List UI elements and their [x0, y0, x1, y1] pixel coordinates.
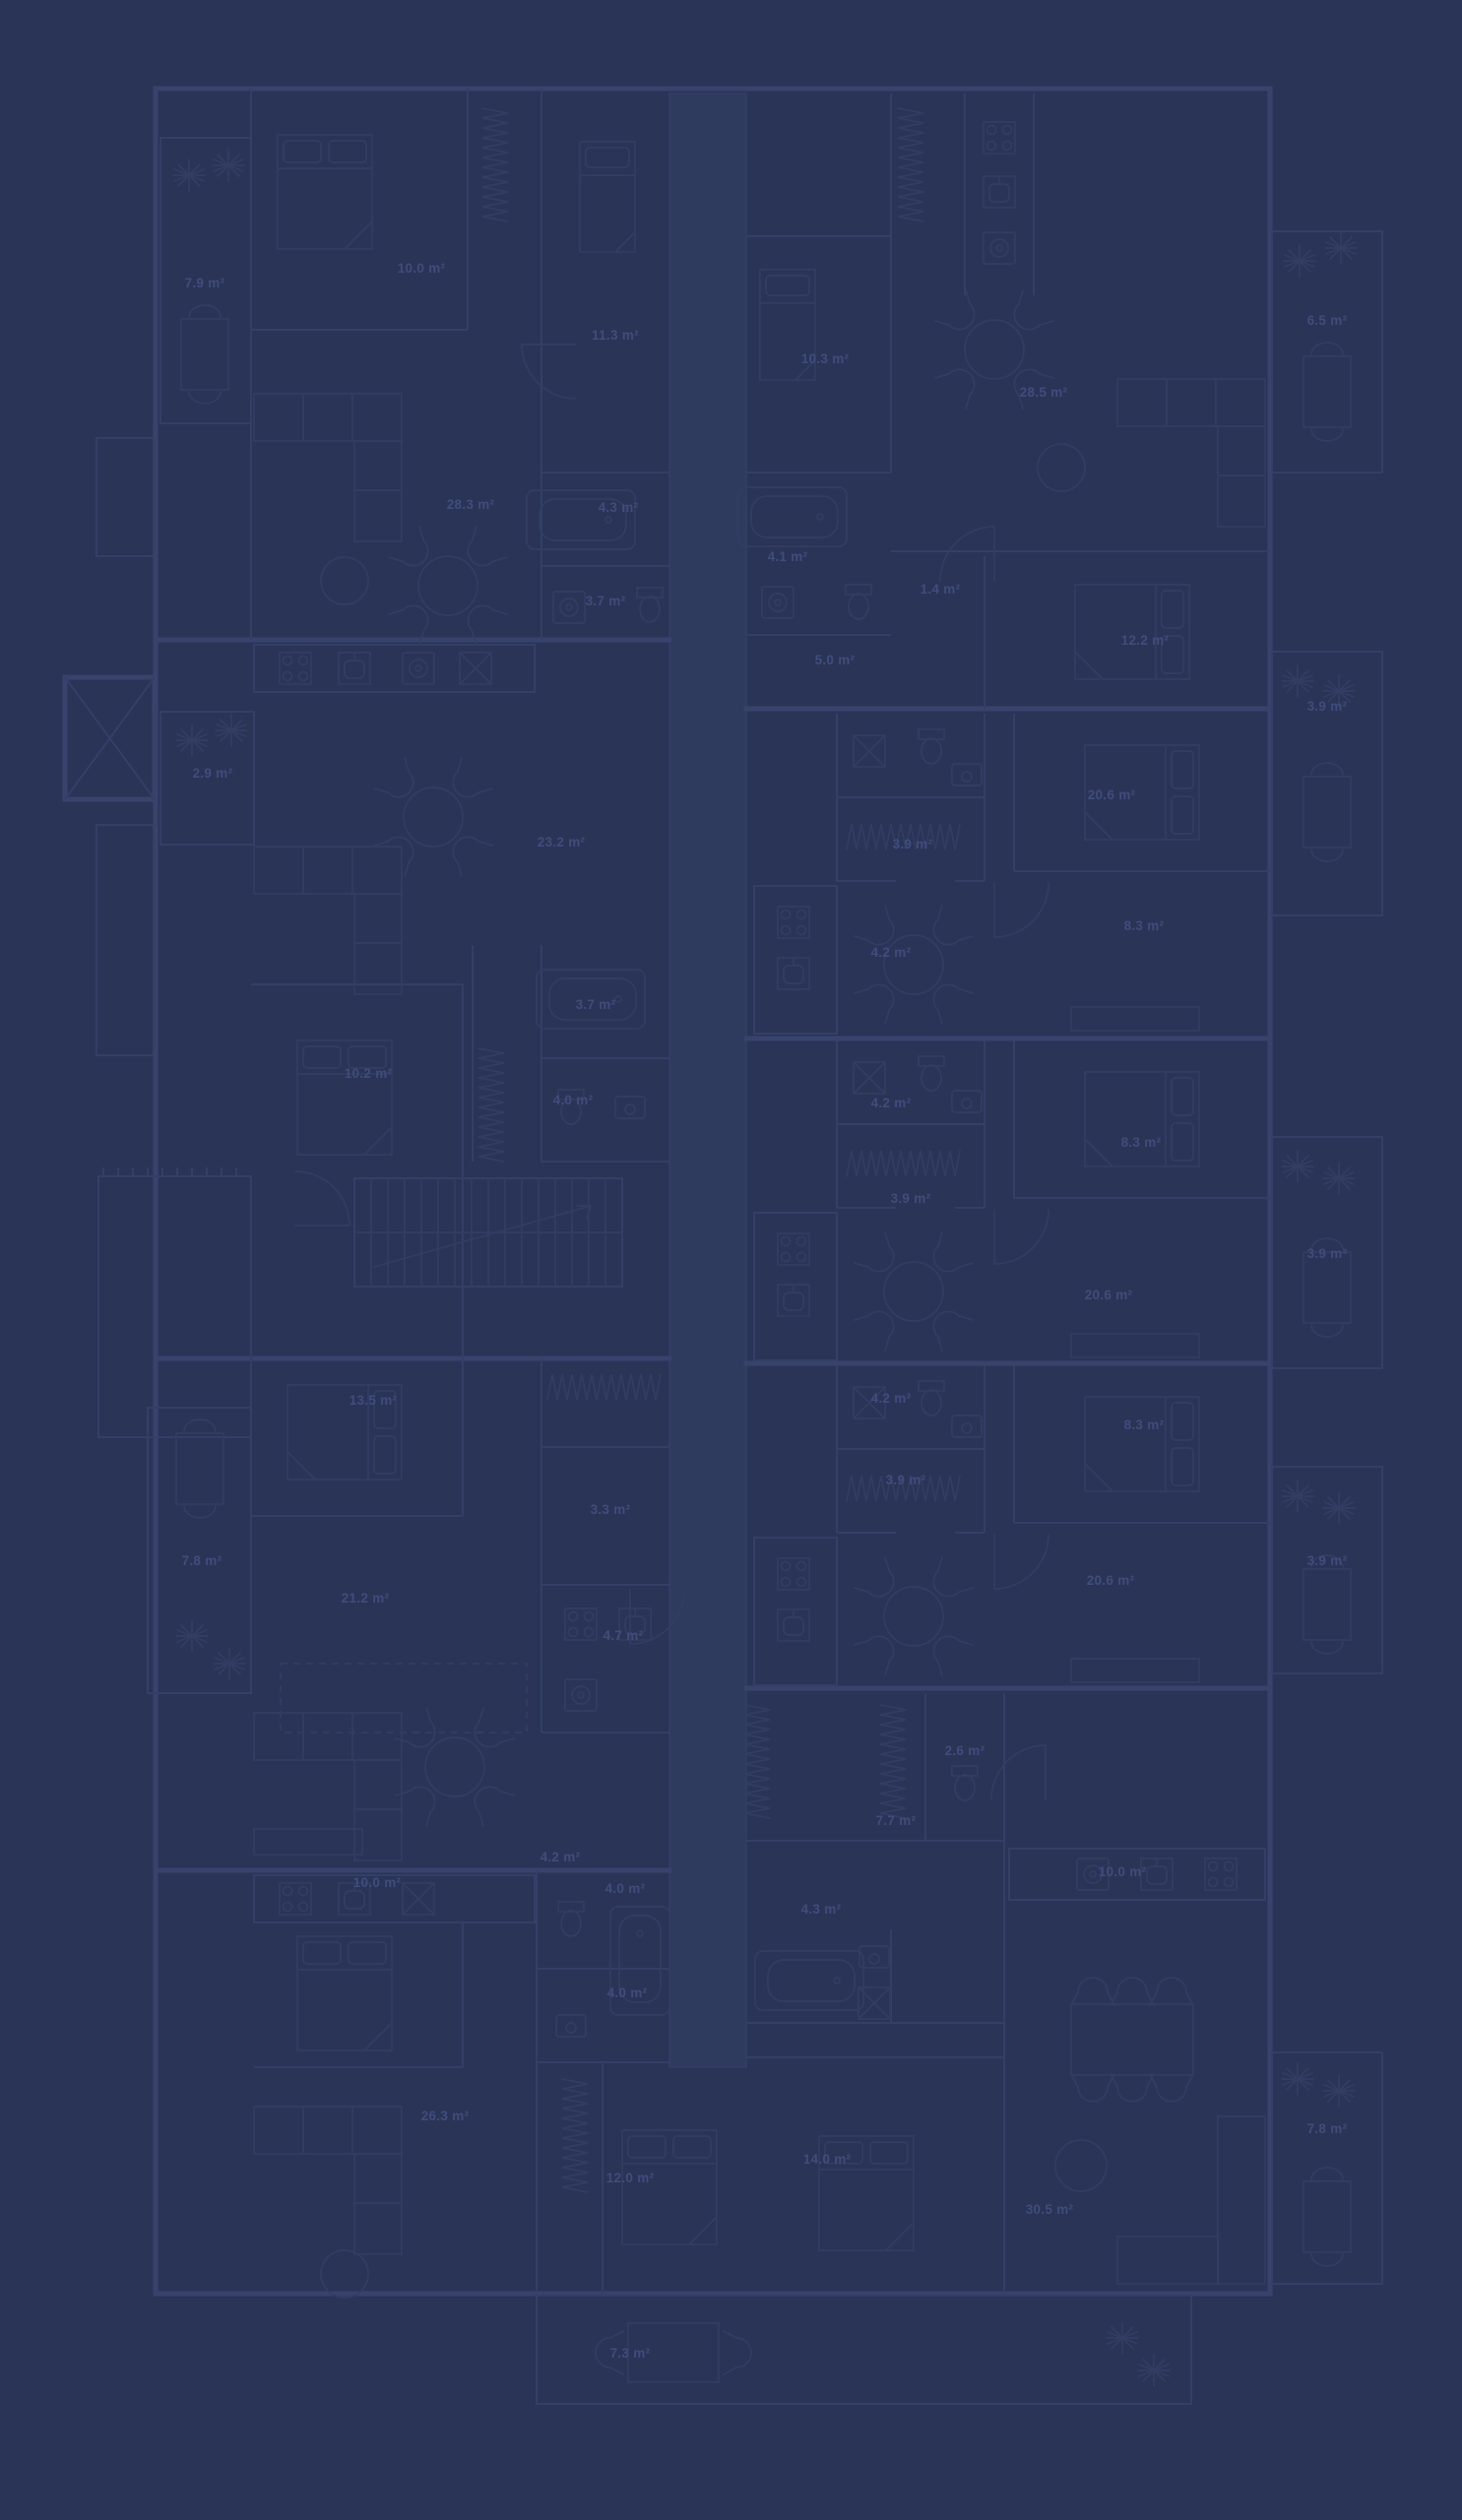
- room-area-label: 7.3 m²: [610, 2346, 651, 2361]
- room-area-label: 23.2 m²: [538, 835, 586, 850]
- room-area-label: 4.2 m²: [871, 945, 912, 960]
- room-area-label: 3.9 m²: [1307, 1246, 1348, 1261]
- carpet-dashed-outline: [281, 1664, 527, 1732]
- room-area-label: 3.3 m²: [591, 1502, 631, 1517]
- room-area-label: 4.3 m²: [599, 500, 639, 515]
- room-area-label: 8.3 m²: [1124, 918, 1165, 933]
- room-area-label: 7.8 m²: [182, 1553, 222, 1568]
- room-area-label: 28.5 m²: [1020, 385, 1068, 400]
- room-area-label: 4.2 m²: [871, 1391, 912, 1406]
- room-area-label: 20.6 m²: [1088, 787, 1136, 802]
- room-area-label: 4.2 m²: [871, 1096, 912, 1110]
- room-area-label: 11.3 m²: [592, 328, 639, 343]
- room-area-label: 3.7 m²: [586, 594, 626, 608]
- staircase: [354, 1178, 622, 1287]
- room-area-label: 12.0 m²: [606, 2171, 655, 2185]
- room-area-label: 10.2 m²: [345, 1066, 393, 1081]
- room-area-label: 3.9 m²: [1307, 1553, 1348, 1568]
- room-area-label: 10.3 m²: [801, 351, 850, 366]
- walls-outer: [65, 89, 1270, 2294]
- furniture: [173, 108, 1357, 2386]
- room-area-label: 4.2 m²: [540, 1850, 581, 1864]
- room-area-label: 2.6 m²: [945, 1743, 985, 1758]
- room-area-label: 26.3 m²: [421, 2109, 470, 2123]
- room-area-label: 30.5 m²: [1026, 2202, 1074, 2217]
- room-area-label: 28.3 m²: [447, 497, 495, 512]
- room-area-label: 3.9 m²: [893, 837, 933, 851]
- floorplan-watermark: 7.9 m²10.0 m²11.3 m²4.3 m²28.3 m²3.7 m²2…: [0, 0, 1462, 2520]
- room-area-label: 12.2 m²: [1121, 633, 1170, 648]
- room-area-label: 20.6 m²: [1087, 1573, 1135, 1588]
- room-area-label: 4.3 m²: [801, 1902, 842, 1917]
- room-area-label: 4.0 m²: [607, 1985, 648, 2000]
- room-area-label: 6.5 m²: [1307, 313, 1348, 328]
- room-area-label: 7.9 m²: [185, 276, 225, 290]
- room-area-label: 14.0 m²: [803, 2152, 852, 2167]
- room-area-label: 2.9 m²: [193, 766, 233, 781]
- right-wing-units: [754, 714, 1270, 1685]
- room-area-label: 10.0 m²: [1099, 1864, 1147, 1879]
- room-area-label: 20.6 m²: [1085, 1288, 1133, 1302]
- room-area-label: 10.0 m²: [398, 261, 446, 276]
- room-area-label: 4.1 m²: [768, 549, 808, 564]
- room-area-label: 4.0 m²: [605, 1881, 646, 1896]
- blueprint-background: 7.9 m²10.0 m²11.3 m²4.3 m²28.3 m²3.7 m²2…: [0, 0, 1462, 2520]
- room-area-label: 3.7 m²: [576, 997, 616, 1012]
- room-area-label: 13.5 m²: [350, 1393, 398, 1408]
- room-area-label: 3.9 m²: [886, 1473, 926, 1487]
- room-area-labels: 7.9 m²10.0 m²11.3 m²4.3 m²28.3 m²3.7 m²2…: [182, 261, 1348, 2361]
- room-area-label: 4.0 m²: [553, 1093, 594, 1107]
- room-area-label: 1.4 m²: [921, 582, 961, 597]
- room-area-label: 8.3 m²: [1124, 1417, 1165, 1432]
- corridor: [669, 94, 746, 2067]
- room-area-label: 7.8 m²: [1307, 2121, 1348, 2136]
- room-area-label: 7.7 m²: [876, 1813, 917, 1828]
- room-area-label: 10.0 m²: [353, 1875, 402, 1890]
- room-area-label: 5.0 m²: [815, 653, 856, 667]
- room-area-label: 4.7 m²: [604, 1628, 644, 1643]
- room-area-label: 8.3 m²: [1121, 1135, 1162, 1150]
- room-area-label: 21.2 m²: [342, 1591, 390, 1606]
- room-area-label: 3.9 m²: [891, 1191, 931, 1206]
- room-area-label: 3.9 m²: [1307, 699, 1348, 714]
